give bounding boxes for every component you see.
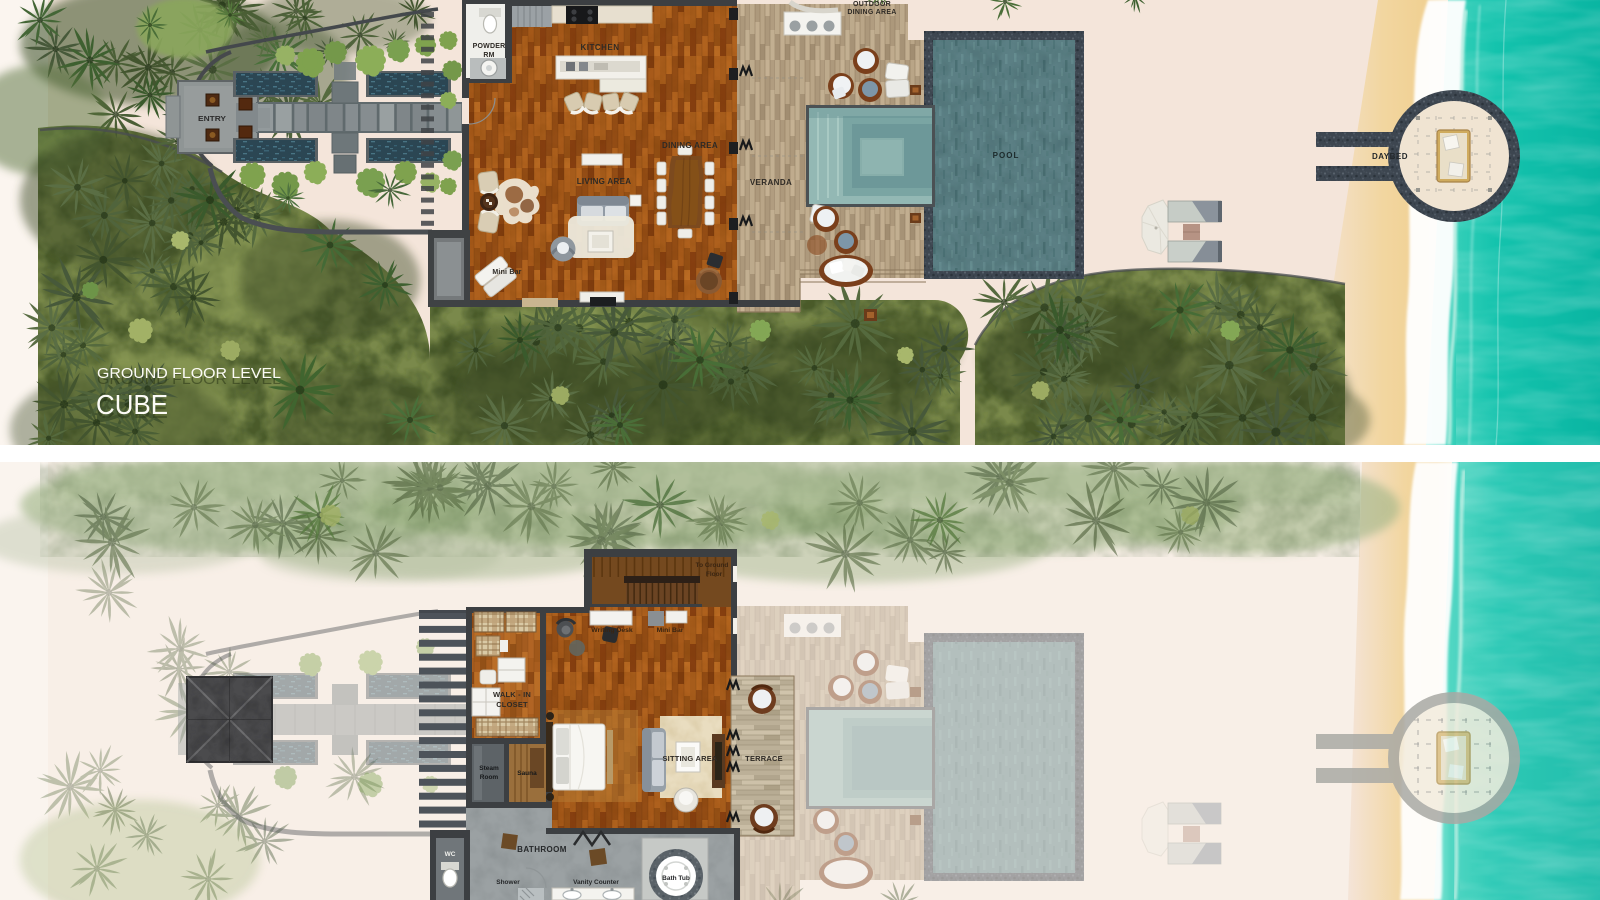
svg-text:Writing Desk: Writing Desk [591,627,633,634]
svg-text:DAYBED: DAYBED [1372,152,1408,161]
svg-text:Room: Room [480,774,499,781]
svg-text:Mini Bar: Mini Bar [657,627,684,634]
svg-text:CUBE: CUBE [96,389,168,420]
svg-text:BATHROOM: BATHROOM [517,845,567,854]
svg-text:OUTDOOR: OUTDOOR [853,1,891,8]
svg-text:DINING AREA: DINING AREA [662,141,718,150]
svg-text:VERANDA: VERANDA [750,178,792,187]
svg-text:Mini Bar: Mini Bar [492,269,521,276]
svg-text:ENTRY: ENTRY [198,114,226,123]
svg-text:POOL: POOL [993,151,1020,160]
svg-text:To Ground: To Ground [696,562,729,569]
svg-text:Shower: Shower [496,879,520,886]
svg-text:TERRACE: TERRACE [745,754,783,763]
svg-text:POWDER: POWDER [473,43,506,50]
svg-text:CLOSET: CLOSET [496,700,528,709]
svg-text:RM: RM [483,52,494,59]
svg-text:Bath Tub: Bath Tub [662,875,690,882]
svg-text:Sauna: Sauna [517,770,537,777]
svg-text:GROUND FLOOR LEVEL: GROUND FLOOR LEVEL [97,365,281,382]
svg-text:Steam: Steam [479,765,499,772]
svg-text:Floor: Floor [706,571,723,578]
svg-text:SITTING AREA: SITTING AREA [662,754,717,763]
svg-text:KITCHEN: KITCHEN [580,43,619,52]
svg-text:DINING AREA: DINING AREA [847,9,896,16]
svg-text:Vanity Counter: Vanity Counter [573,879,619,886]
svg-text:WALK - IN: WALK - IN [493,690,531,699]
svg-text:LIVING AREA: LIVING AREA [577,177,632,186]
svg-text:WC: WC [445,851,456,858]
